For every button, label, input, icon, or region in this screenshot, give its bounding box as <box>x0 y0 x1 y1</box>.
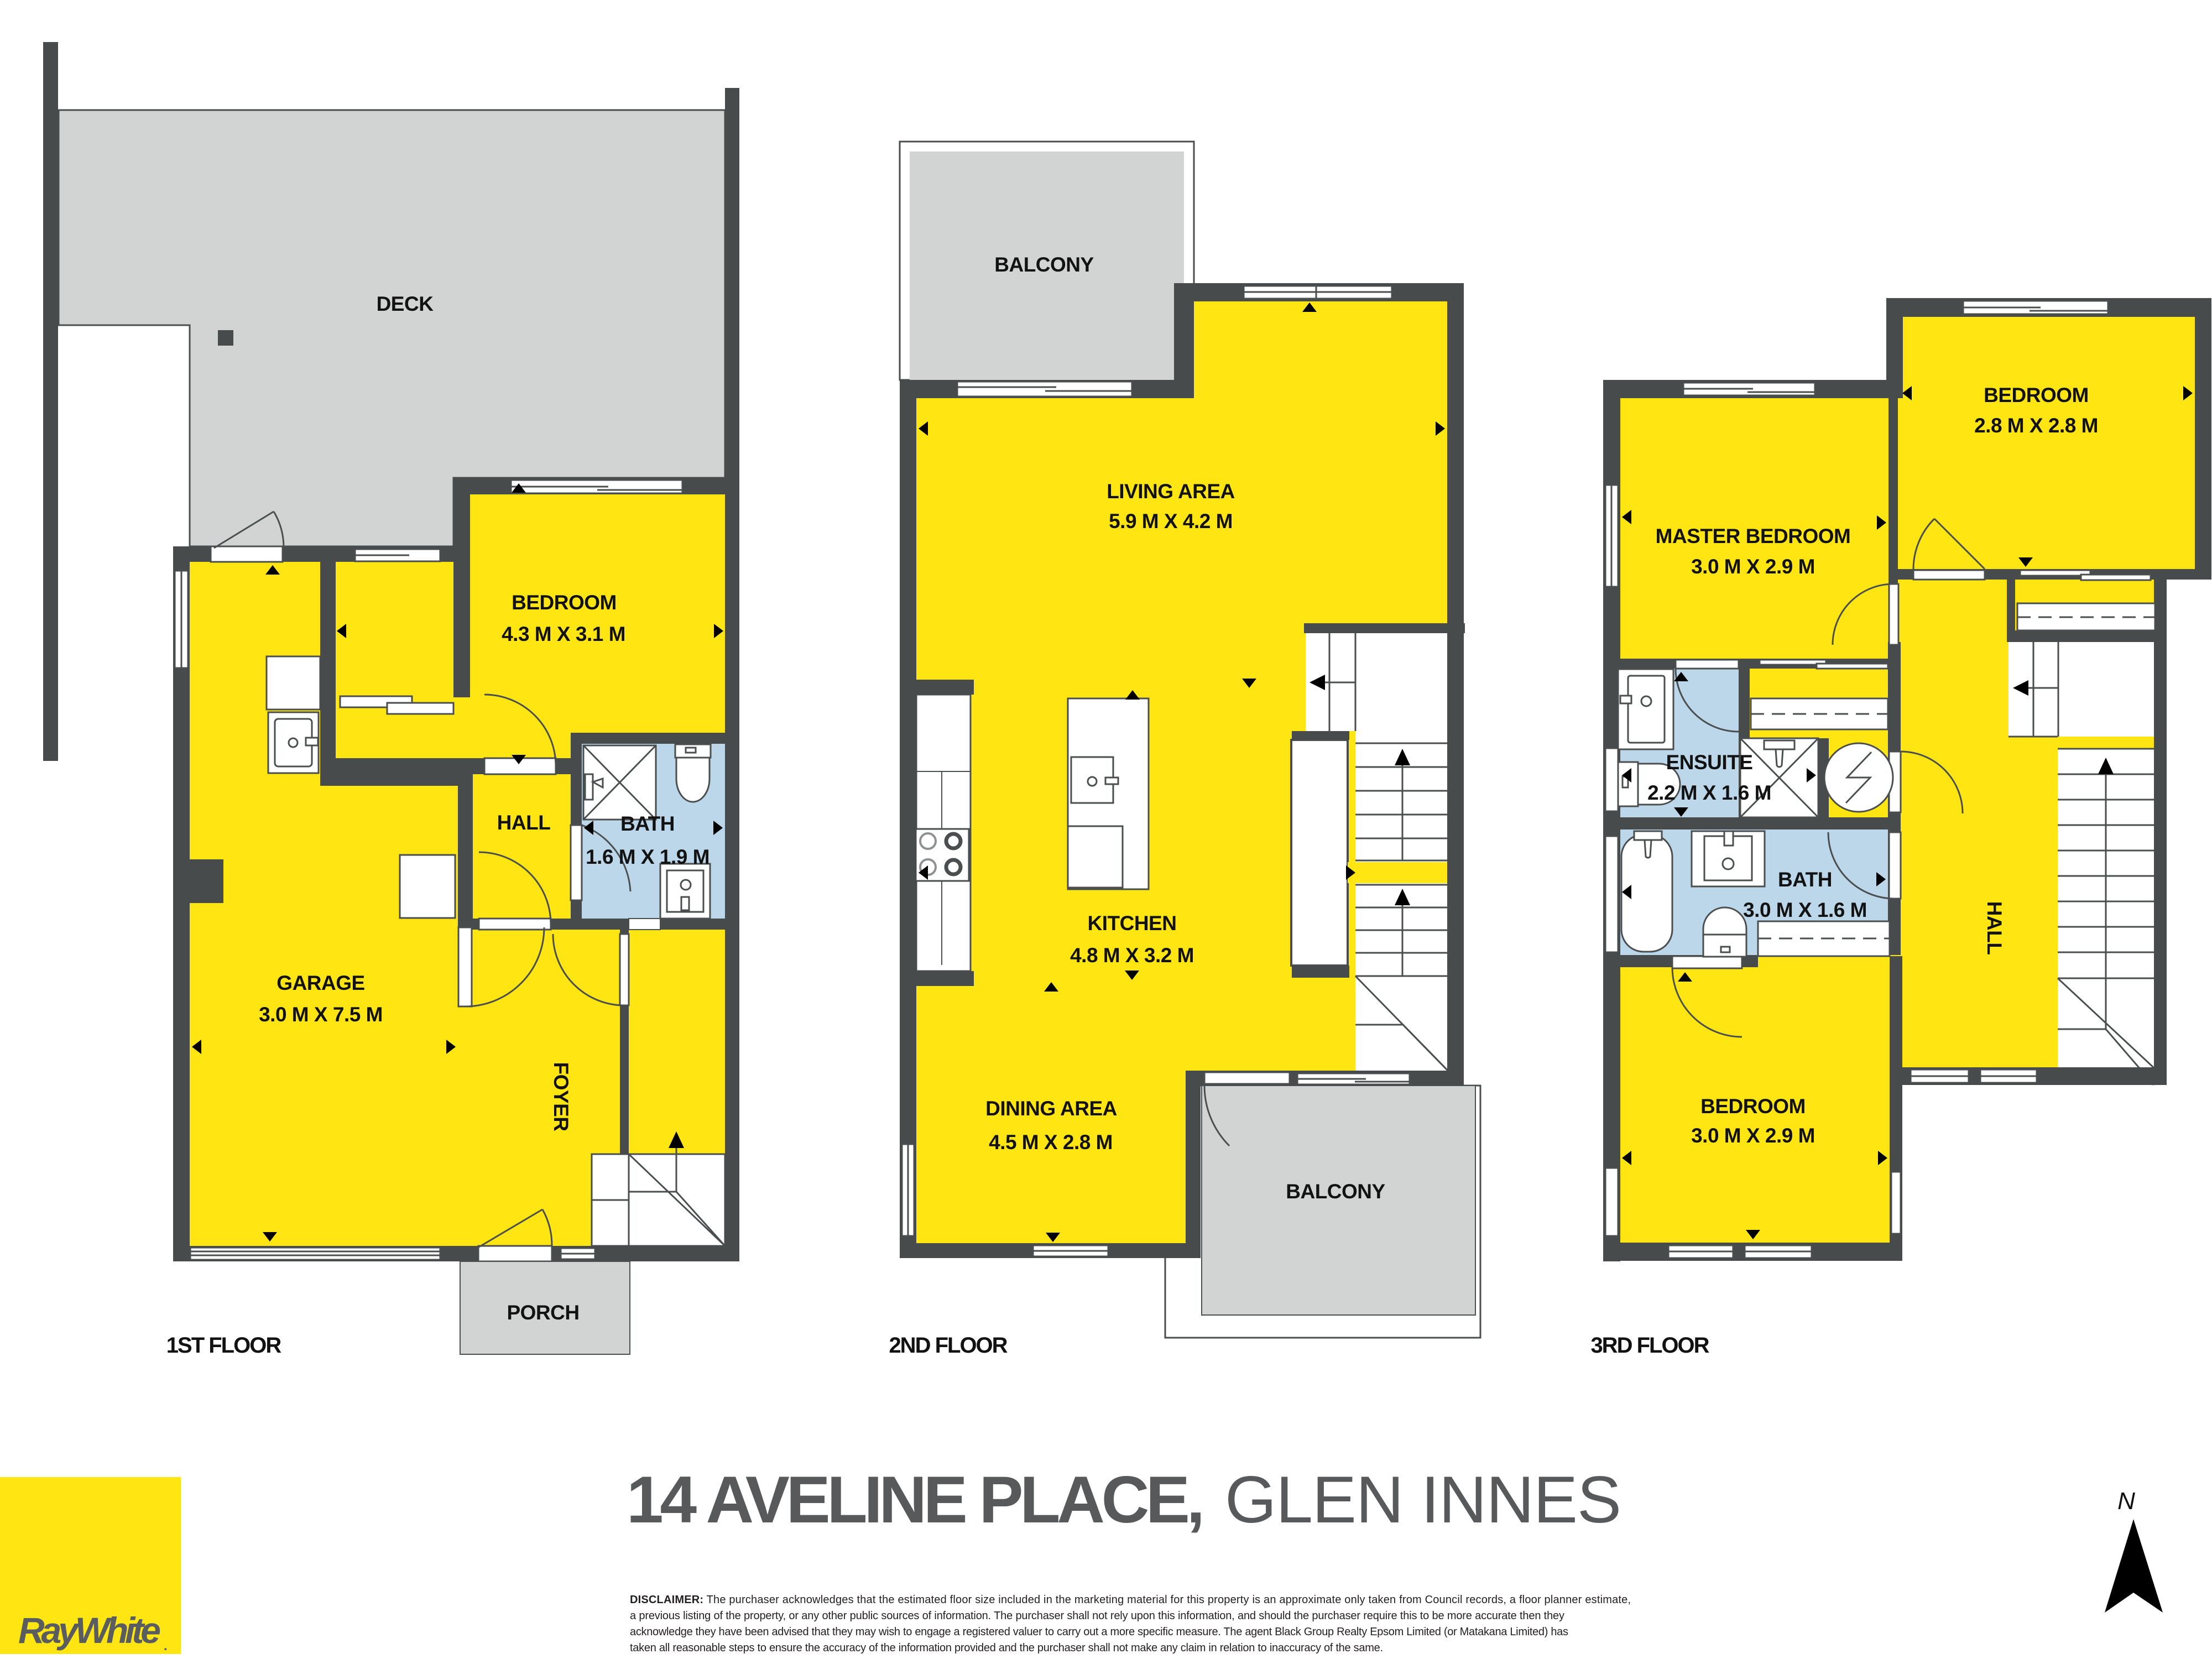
svg-text:BEDROOM: BEDROOM <box>1984 384 2089 406</box>
svg-text:GARAGE: GARAGE <box>276 972 364 994</box>
svg-text:1ST FLOOR: 1ST FLOOR <box>166 1333 282 1358</box>
svg-text:GLEN INNES: GLEN INNES <box>1225 1463 1621 1537</box>
svg-text:3.0 M X 2.9 M: 3.0 M X 2.9 M <box>1691 555 1815 578</box>
svg-text:3.0 M X 7.5 M: 3.0 M X 7.5 M <box>259 1003 383 1026</box>
svg-text:LIVING AREA: LIVING AREA <box>1107 480 1235 503</box>
svg-text:3.0 M X 2.9 M: 3.0 M X 2.9 M <box>1691 1124 1815 1147</box>
svg-text:ENSUITE: ENSUITE <box>1666 751 1753 774</box>
svg-text:1.6 M X 1.9 M: 1.6 M X 1.9 M <box>586 846 709 868</box>
svg-text:4.8 M X 3.2 M: 4.8 M X 3.2 M <box>1070 944 1194 967</box>
svg-text:BEDROOM: BEDROOM <box>512 591 617 614</box>
svg-text:a previous listing of the prop: a previous listing of the property, or a… <box>630 1610 1564 1622</box>
svg-text:DINING AREA: DINING AREA <box>985 1097 1117 1120</box>
svg-text:BALCONY: BALCONY <box>1286 1180 1385 1203</box>
svg-text:MASTER BEDROOM: MASTER BEDROOM <box>1656 525 1851 547</box>
svg-text:2.8 M X 2.8 M: 2.8 M X 2.8 M <box>1974 414 2098 437</box>
svg-text:BATH: BATH <box>620 812 675 835</box>
svg-text:acknowledge they have been adv: acknowledge they have been advised that … <box>630 1626 1568 1638</box>
svg-text:3.0 M X 1.6 M: 3.0 M X 1.6 M <box>1743 899 1867 921</box>
svg-text:14 AVELINE PLACE,: 14 AVELINE PLACE, <box>627 1463 1205 1537</box>
svg-text:3RD FLOOR: 3RD FLOOR <box>1590 1333 1709 1358</box>
svg-text:2ND FLOOR: 2ND FLOOR <box>889 1333 1008 1358</box>
svg-text:PORCH: PORCH <box>507 1301 579 1324</box>
svg-text:FOYER: FOYER <box>550 1062 572 1131</box>
svg-text:5.9 M X 4.2 M: 5.9 M X 4.2 M <box>1109 510 1233 533</box>
svg-text:RayWhite: RayWhite <box>18 1610 161 1651</box>
svg-text:DISCLAIMER: The purchaser ackn: DISCLAIMER: The purchaser acknowledges t… <box>630 1594 1631 1606</box>
svg-text:BATH: BATH <box>1778 868 1832 891</box>
svg-text:DECK: DECK <box>377 293 434 315</box>
svg-text:4.5 M X 2.8 M: 4.5 M X 2.8 M <box>989 1131 1113 1154</box>
svg-text:4.3 M X 3.1 M: 4.3 M X 3.1 M <box>502 623 625 645</box>
svg-text:.: . <box>164 1639 168 1653</box>
svg-text:N: N <box>2117 1488 2135 1515</box>
svg-text:BALCONY: BALCONY <box>994 253 1094 276</box>
svg-text:2.2 M X 1.6 M: 2.2 M X 1.6 M <box>1647 781 1771 804</box>
svg-text:BEDROOM: BEDROOM <box>1700 1095 1806 1118</box>
svg-text:HALL: HALL <box>497 811 551 834</box>
svg-text:taken all reasonable steps to: taken all reasonable steps to ensure the… <box>630 1642 1383 1654</box>
svg-text:HALL: HALL <box>1983 901 2006 955</box>
svg-text:KITCHEN: KITCHEN <box>1088 912 1177 935</box>
